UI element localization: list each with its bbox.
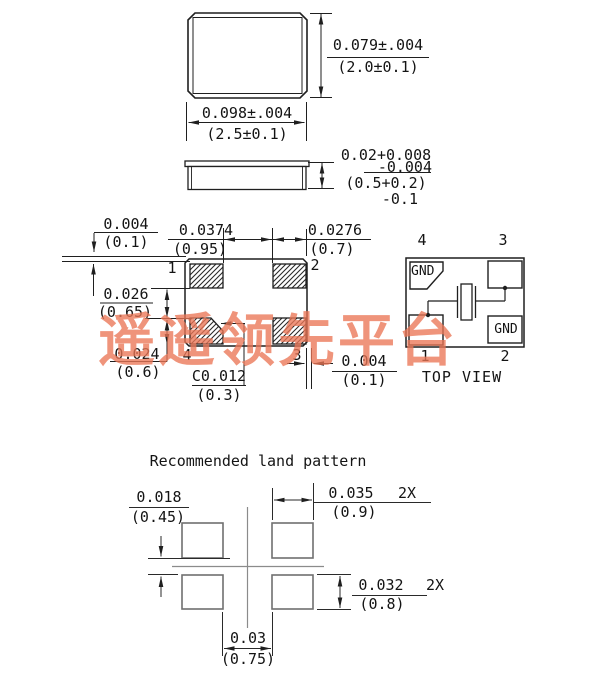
package-outline-view [188, 13, 307, 98]
dim-chamfer-inch: C0.012 [190, 368, 248, 385]
top-view-pad1 [409, 315, 443, 345]
pad-2-hatched [273, 264, 306, 288]
top-view-pin1-label: 1 [418, 348, 432, 365]
pad-3-hatched [273, 318, 306, 344]
dim-pad-width-inch: 0.0276 [303, 222, 367, 239]
dim-land-pad-width-mm: (0.9) [326, 504, 382, 521]
land-pad-tr [272, 523, 313, 558]
dim-top-edge-gap-inch: 0.004 [96, 216, 156, 233]
top-view-pin3-label: 3 [496, 232, 510, 249]
top-view-pad3 [488, 261, 522, 288]
land-pattern-shape [172, 507, 324, 628]
dim-pad-pitch-mm: (0.95) [170, 241, 230, 258]
dim-package-height-inch: 0.079±.004 [326, 37, 430, 54]
land-pad-br [272, 575, 313, 609]
bottom-view-pin3-label: 3 [291, 347, 303, 364]
junction-dot [426, 313, 430, 317]
dim-land-row-gap-mm: (0.45) [127, 509, 189, 526]
dim-land-pad-width-qty: 2X [398, 485, 428, 502]
dim-right-edge-gap-mm: (0.1) [338, 372, 390, 389]
dim-land-pad-height-mm: (0.8) [356, 596, 408, 613]
dim-package-height-mm: (2.0±0.1) [326, 59, 430, 76]
side-view-shape [185, 161, 309, 190]
bottom-view-pin1-label: 1 [166, 260, 178, 277]
dim-pad-gap-mm: (0.65) [96, 304, 154, 321]
dim-package-width-mm: (2.5±0.1) [188, 126, 306, 143]
top-view-pin2-label: 2 [498, 348, 512, 365]
dim-package-width-inch: 0.098±.004 [188, 105, 306, 122]
dim-pad-height-inch: 0.024 [110, 346, 164, 363]
bottom-view-pin2-label: 2 [309, 257, 321, 274]
dim-land-pad-width-inch: 0.035 [322, 485, 380, 502]
dim-chamfer-mm: (0.3) [194, 387, 244, 404]
dim-land-pad-height-qty: 2X [426, 577, 456, 594]
pad-1-hatched [190, 264, 223, 288]
bottom-view-pin4-label: 4 [181, 347, 193, 364]
land-pad-tl [182, 523, 223, 558]
dim-top-edge-gap-mm: (0.1) [96, 234, 156, 251]
dim-pad-gap-inch: 0.026 [99, 286, 153, 303]
top-view-caption: TOP VIEW [412, 369, 512, 386]
dim-land-col-gap-mm: (0.75) [219, 651, 277, 668]
top-view-pin4-label: 4 [415, 232, 429, 249]
dim-land-row-gap-inch: 0.018 [130, 489, 188, 506]
dim-land-pad-height-inch: 0.032 [352, 577, 410, 594]
land-pad-bl [182, 575, 223, 609]
gnd-label-pad2: GND [490, 323, 522, 337]
technical-drawing-canvas: 0.079±.004 (2.0±0.1) 0.098±.004 (2.5±0.1… [0, 0, 607, 700]
dim-thickness-mm-tol: -0.1 [348, 191, 418, 208]
dim-land-col-gap-inch: 0.03 [225, 630, 271, 647]
dim-pad-height-mm: (0.6) [114, 364, 162, 381]
junction-dot [503, 286, 507, 290]
gnd-label-pad4: GND [411, 265, 443, 279]
dim-right-edge-gap-inch: 0.004 [334, 353, 394, 370]
crystal-symbol [461, 284, 472, 320]
land-pattern-title: Recommended land pattern [140, 453, 376, 470]
dim-pad-pitch-inch: 0.0374 [176, 222, 236, 239]
